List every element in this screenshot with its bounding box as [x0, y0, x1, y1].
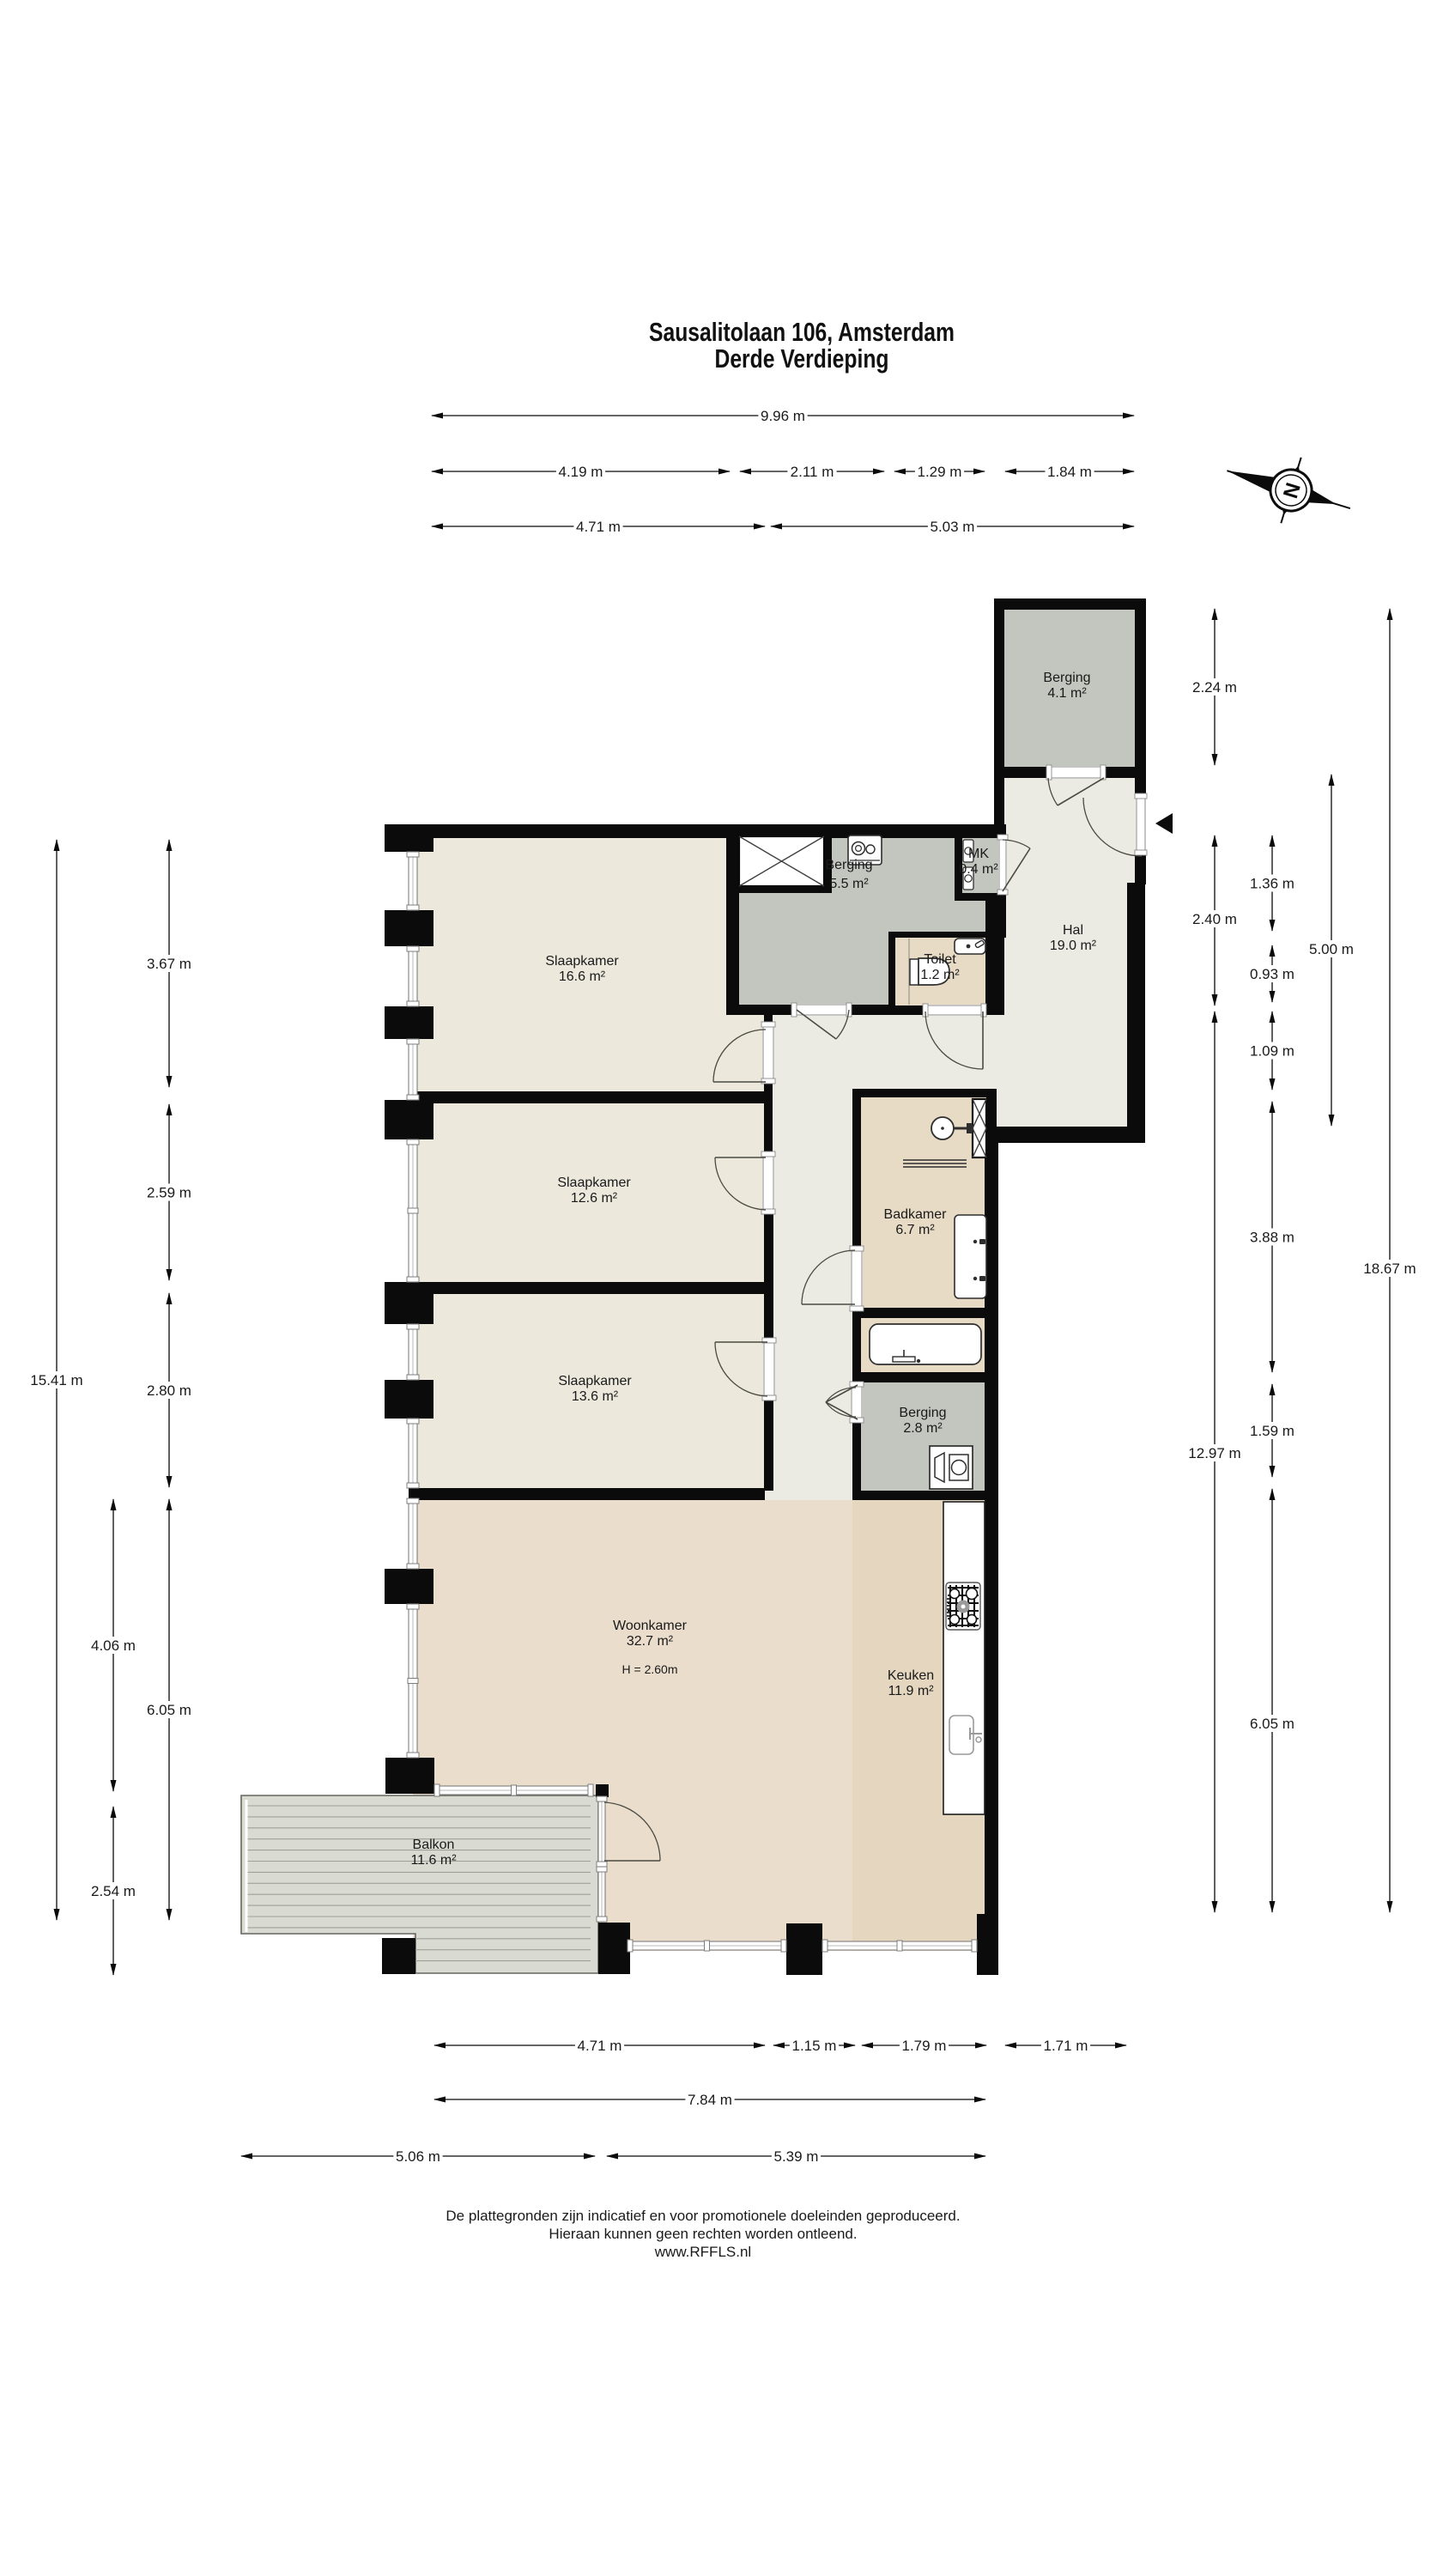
svg-text:1.29 m: 1.29 m	[918, 464, 962, 480]
svg-text:1.71 m: 1.71 m	[1044, 2038, 1088, 2054]
svg-text:2.59 m: 2.59 m	[147, 1185, 191, 1201]
svg-text:4.19 m: 4.19 m	[559, 464, 603, 480]
svg-text:2.24 m: 2.24 m	[1192, 679, 1237, 696]
svg-text:7.84 m: 7.84 m	[688, 2092, 732, 2108]
svg-text:Hal: Hal	[1063, 923, 1083, 938]
svg-text:5.00 m: 5.00 m	[1309, 941, 1354, 957]
svg-text:15.41 m: 15.41 m	[30, 1372, 82, 1388]
svg-text:4.1 m²: 4.1 m²	[1047, 686, 1087, 701]
svg-text:1.2 m²: 1.2 m²	[920, 968, 960, 982]
svg-text:9.96 m: 9.96 m	[761, 408, 805, 424]
svg-text:4.71 m: 4.71 m	[576, 519, 621, 535]
svg-text:32.7 m²: 32.7 m²	[627, 1634, 674, 1649]
svg-text:0.93 m: 0.93 m	[1250, 966, 1294, 982]
svg-text:Keuken: Keuken	[888, 1668, 934, 1683]
svg-text:5.03 m: 5.03 m	[931, 519, 975, 535]
svg-text:19.0 m²: 19.0 m²	[1050, 939, 1097, 953]
svg-text:Derde Verdieping: Derde Verdieping	[715, 343, 889, 374]
svg-text:11.9 m²: 11.9 m²	[888, 1684, 934, 1698]
svg-text:5.06 m: 5.06 m	[396, 2148, 440, 2165]
svg-text:Berging: Berging	[1043, 671, 1090, 685]
svg-text:Woonkamer: Woonkamer	[613, 1619, 688, 1633]
svg-text:16.6 m²: 16.6 m²	[559, 969, 606, 984]
svg-text:H = 2.60m: H = 2.60m	[622, 1662, 678, 1676]
svg-text:2.54 m: 2.54 m	[91, 1883, 136, 1899]
svg-text:3.67 m: 3.67 m	[147, 956, 191, 972]
svg-text:18.67 m: 18.67 m	[1363, 1261, 1416, 1277]
svg-text:13.6 m²: 13.6 m²	[572, 1389, 619, 1404]
svg-text:Berging: Berging	[825, 858, 872, 872]
svg-text:2.40 m: 2.40 m	[1192, 911, 1237, 927]
svg-text:Badkamer: Badkamer	[884, 1207, 948, 1222]
svg-text:Hieraan kunnen geen rechten wo: Hieraan kunnen geen rechten worden ontle…	[549, 2226, 857, 2242]
svg-text:5.39 m: 5.39 m	[774, 2148, 819, 2165]
svg-text:1.09 m: 1.09 m	[1250, 1043, 1294, 1060]
svg-text:2.11 m: 2.11 m	[791, 464, 834, 480]
svg-text:4.06 m: 4.06 m	[91, 1637, 136, 1654]
svg-text:12.6 m²: 12.6 m²	[571, 1191, 618, 1206]
svg-text:6.7 m²: 6.7 m²	[895, 1223, 935, 1237]
svg-text:Balkon: Balkon	[413, 1838, 455, 1852]
svg-text:Toilet: Toilet	[924, 952, 956, 967]
svg-text:Slaapkamer: Slaapkamer	[545, 954, 619, 969]
svg-text:2.8 m²: 2.8 m²	[903, 1421, 943, 1436]
svg-text:Sausalitolaan 106, Amsterdam: Sausalitolaan 106, Amsterdam	[649, 317, 955, 347]
svg-text:Berging: Berging	[899, 1406, 946, 1420]
svg-text:1.79 m: 1.79 m	[902, 2038, 947, 2054]
svg-text:3.88 m: 3.88 m	[1250, 1230, 1294, 1246]
svg-text:Slaapkamer: Slaapkamer	[557, 1176, 631, 1190]
svg-text:Slaapkamer: Slaapkamer	[558, 1374, 632, 1388]
svg-text:5.5 m²: 5.5 m²	[829, 877, 869, 891]
svg-text:0.4 m²: 0.4 m²	[959, 862, 998, 877]
svg-text:De plattegronden zijn indicati: De plattegronden zijn indicatief en voor…	[446, 2208, 960, 2224]
svg-text:1.36 m: 1.36 m	[1250, 876, 1294, 892]
svg-text:www.RFFLS.nl: www.RFFLS.nl	[654, 2244, 751, 2260]
svg-text:4.71 m: 4.71 m	[578, 2038, 622, 2054]
svg-text:2.80 m: 2.80 m	[147, 1382, 191, 1399]
svg-text:MK: MK	[968, 847, 989, 861]
svg-text:12.97 m: 12.97 m	[1188, 1445, 1240, 1461]
svg-text:1.15 m: 1.15 m	[792, 2038, 837, 2054]
svg-text:6.05 m: 6.05 m	[1250, 1716, 1294, 1732]
svg-text:6.05 m: 6.05 m	[147, 1702, 191, 1718]
svg-text:11.6 m²: 11.6 m²	[410, 1853, 457, 1868]
svg-text:1.84 m: 1.84 m	[1047, 464, 1092, 480]
svg-text:1.59 m: 1.59 m	[1250, 1423, 1294, 1439]
